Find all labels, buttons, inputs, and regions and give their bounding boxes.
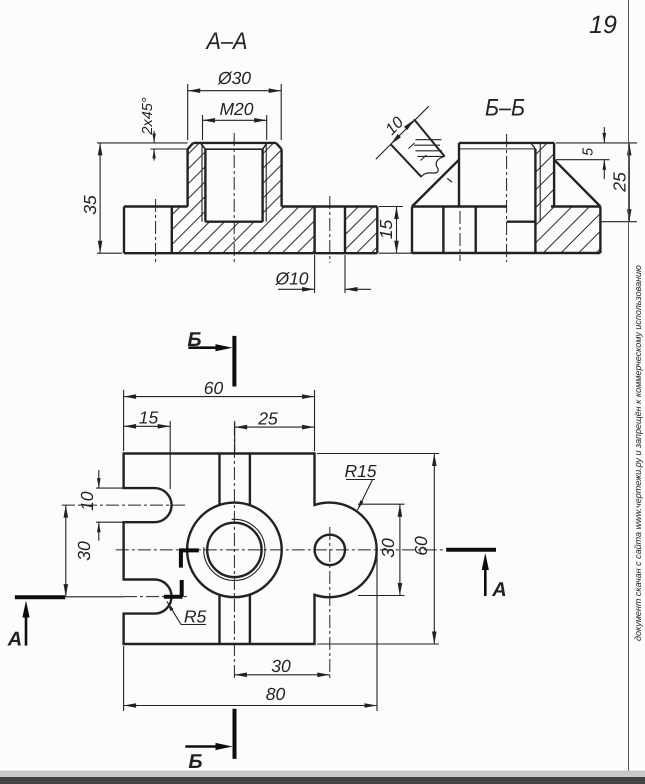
svg-text:А: А: [7, 629, 22, 651]
svg-text:Ø10: Ø10: [274, 269, 308, 289]
svg-text:документ скачан с сайта www.че: документ скачан с сайта www.чертежи.ру и…: [633, 265, 643, 641]
svg-text:30: 30: [74, 541, 94, 561]
svg-text:R15: R15: [344, 461, 376, 481]
svg-text:10: 10: [77, 491, 97, 511]
svg-text:35: 35: [80, 195, 100, 215]
svg-text:Ø30: Ø30: [217, 68, 251, 88]
svg-text:А: А: [491, 579, 506, 601]
svg-text:15: 15: [139, 408, 159, 428]
svg-text:60: 60: [204, 378, 224, 398]
svg-text:60: 60: [411, 536, 431, 556]
svg-text:R5: R5: [184, 607, 207, 627]
svg-text:M20: M20: [219, 99, 253, 119]
svg-text:80: 80: [266, 684, 286, 704]
svg-text:10: 10: [383, 114, 408, 139]
svg-text:30: 30: [378, 538, 398, 558]
svg-text:Б–Б: Б–Б: [485, 95, 525, 122]
svg-text:25: 25: [610, 172, 630, 193]
svg-text:25: 25: [257, 409, 278, 429]
svg-text:А–А: А–А: [205, 28, 248, 55]
svg-text:19: 19: [589, 11, 617, 39]
svg-text:Б: Б: [187, 329, 201, 351]
svg-text:5: 5: [581, 147, 597, 156]
svg-text:30: 30: [271, 656, 291, 676]
svg-text:Б: Б: [188, 751, 202, 773]
svg-text:2x45°: 2x45°: [140, 97, 156, 135]
svg-text:15: 15: [376, 220, 396, 240]
